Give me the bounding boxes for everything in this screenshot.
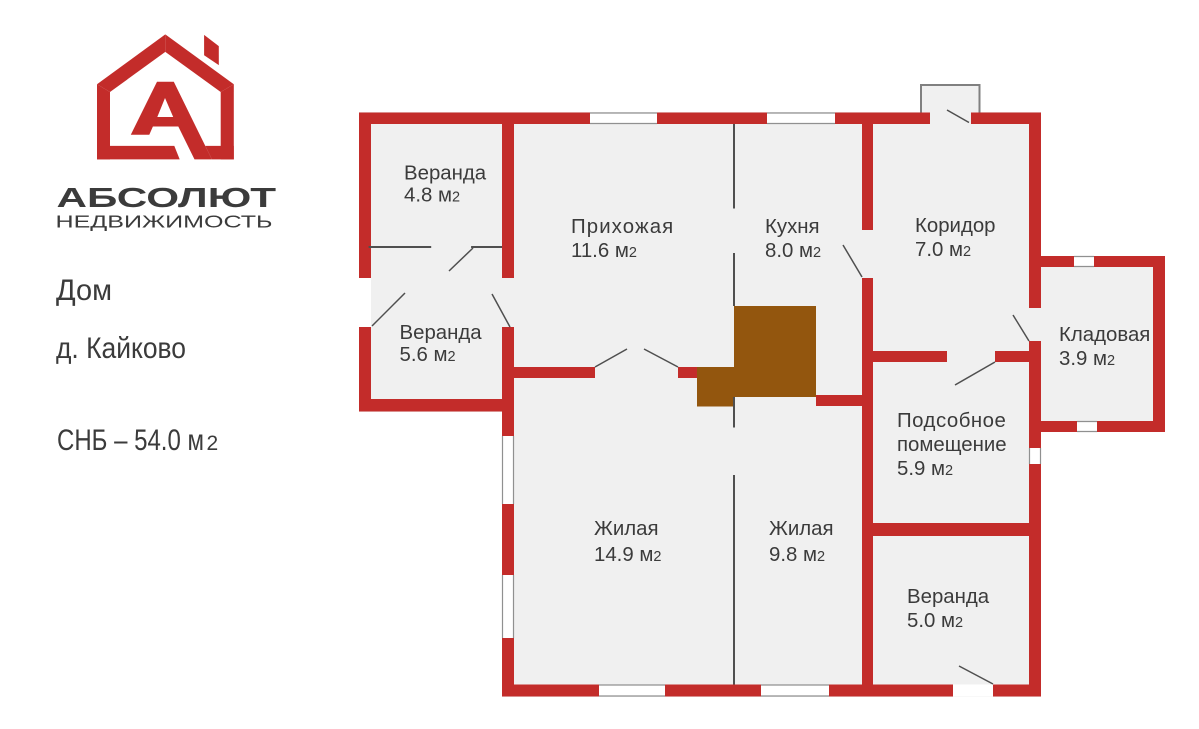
svg-text:СНБ – 54.0 м: СНБ – 54.0 м [57, 424, 204, 457]
svg-text:5.0 м2: 5.0 м2 [907, 610, 963, 632]
svg-text:9.8 м2: 9.8 м2 [769, 544, 825, 566]
svg-text:Кухня: Кухня [765, 216, 820, 238]
svg-text:Жилая: Жилая [769, 518, 834, 540]
svg-text:11.6 м2: 11.6 м2 [571, 240, 637, 262]
svg-text:АБСОЛЮТ: АБСОЛЮТ [57, 182, 277, 213]
svg-text:Веранда: Веранда [404, 163, 487, 185]
svg-text:д. Кайково: д. Кайково [56, 332, 186, 365]
svg-text:Кладовая: Кладовая [1059, 324, 1150, 346]
svg-text:5.6 м2: 5.6 м2 [400, 344, 456, 366]
svg-text:Прихожая: Прихожая [571, 216, 674, 238]
svg-text:Веранда: Веранда [907, 586, 990, 608]
svg-text:Дом: Дом [56, 274, 112, 307]
svg-text:помещение: помещение [897, 434, 1007, 456]
svg-text:2: 2 [207, 432, 219, 455]
svg-text:Коридор: Коридор [915, 215, 996, 237]
svg-text:14.9 м2: 14.9 м2 [594, 544, 661, 566]
svg-text:НЕДВИЖИМОСТЬ: НЕДВИЖИМОСТЬ [56, 212, 273, 232]
svg-text:4.8 м2: 4.8 м2 [404, 185, 460, 207]
svg-text:8.0 м2: 8.0 м2 [765, 240, 821, 262]
svg-text:Веранда: Веранда [400, 322, 483, 344]
svg-text:Жилая: Жилая [594, 518, 659, 540]
svg-text:7.0 м2: 7.0 м2 [915, 239, 971, 261]
svg-text:5.9 м2: 5.9 м2 [897, 458, 953, 480]
svg-text:Подсобное: Подсобное [897, 410, 1006, 432]
svg-text:3.9 м2: 3.9 м2 [1059, 348, 1115, 370]
